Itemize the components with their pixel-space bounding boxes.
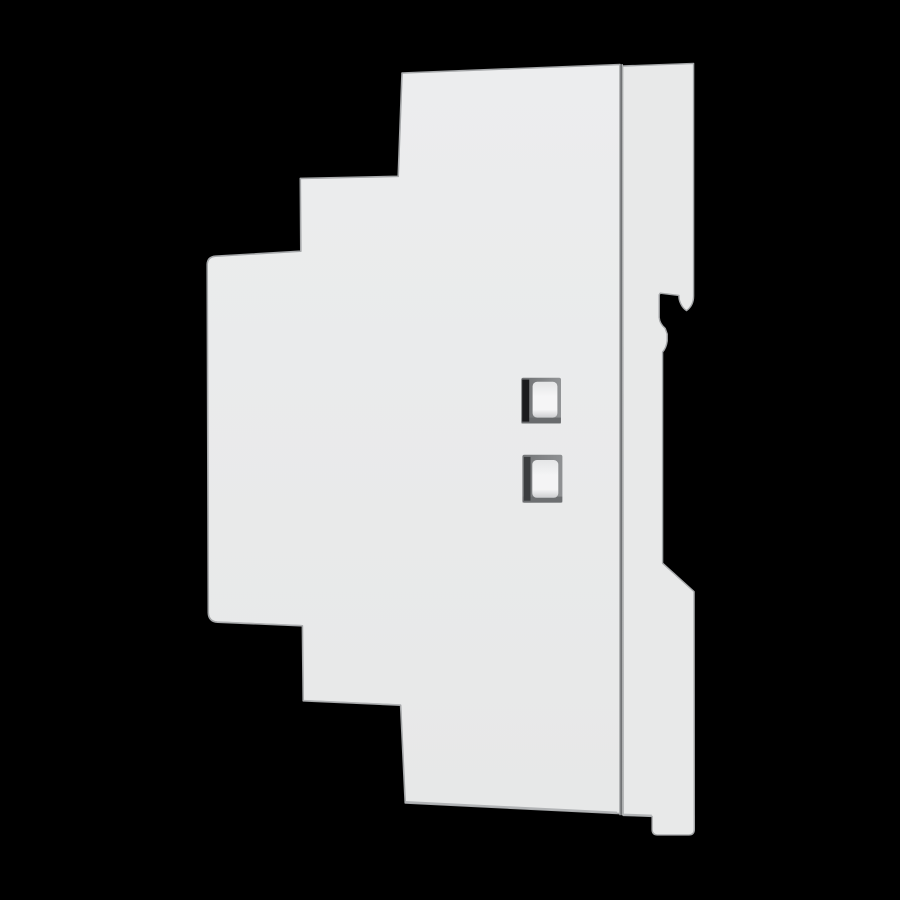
upper-side-button [521,378,561,424]
lower-button-face [532,460,558,498]
upper-button-face [533,382,558,418]
panel-divider-seam [619,64,623,815]
photo-canvas [0,0,900,900]
lower-button-slot [524,457,531,501]
upper-button-slot [522,380,529,422]
lower-side-button [522,455,562,503]
product-photo-svg [0,0,900,900]
